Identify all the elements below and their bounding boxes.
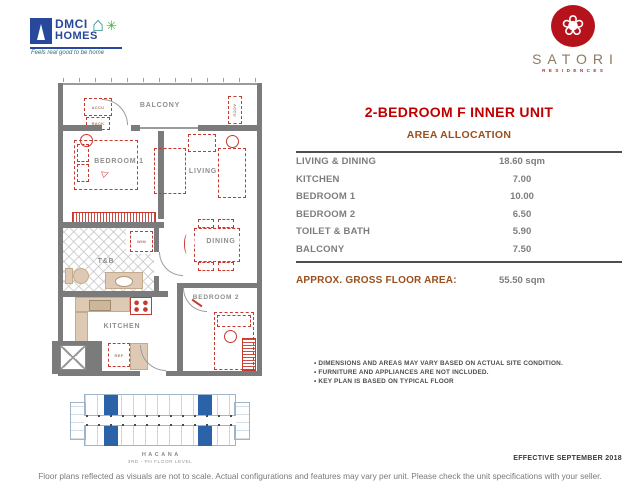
footer-disclaimer: Floor plans reflected as visuals are not… (0, 471, 640, 481)
area-value: 6.50 (467, 209, 577, 220)
room-label-tb: T&B (78, 258, 134, 265)
room-label-living: LIVING (171, 168, 235, 175)
table-row: BEDROOM 2 6.50 (296, 206, 622, 224)
note-item: DIMENSIONS AND AREAS MAY VARY BASED ON A… (314, 360, 624, 369)
effective-date: EFFECTIVE SEPTEMBER 2018 (513, 455, 622, 462)
area-label: BALCONY (296, 244, 467, 255)
dmci-wordmark-line1: DMCI (55, 17, 88, 31)
gross-area-row: APPROX. GROSS FLOOR AREA: 55.50 sqm (296, 267, 622, 293)
dining-chair (198, 219, 214, 228)
pillow (217, 315, 251, 327)
room-label-dining: DINING (189, 238, 253, 245)
sliding-door (140, 127, 198, 129)
unit-floor-plan: ACCU RACK ACCU BALCONY ▷ BEDROOM 1 LIVIN… (58, 76, 262, 380)
room-label-balcony: BALCONY (118, 102, 202, 109)
dmci-underline (30, 47, 122, 49)
ceiling-fan-icon (226, 135, 239, 148)
table-row: LIVING & DINING 18.60 sqm (296, 153, 622, 171)
note-item: FURNITURE AND APPLIANCES ARE NOT INCLUDE… (314, 369, 624, 378)
toilet-tank (65, 268, 73, 284)
door-swing-arc (159, 252, 183, 276)
wall (154, 228, 159, 252)
gross-area-label: APPROX. GROSS FLOOR AREA: (296, 275, 467, 286)
toilet-bowl (73, 268, 89, 284)
balcony-rail-ticks (63, 78, 257, 82)
highlighted-unit (104, 426, 118, 446)
sakura-circle-icon: ❀ (551, 5, 595, 47)
wall (131, 125, 140, 131)
leaf-splash-icon: ✳ (106, 18, 117, 34)
dmci-tagline: Feels real good to be home (31, 50, 104, 56)
refrigerator-box: REF (108, 343, 130, 367)
area-label: KITCHEN (296, 174, 467, 185)
area-value: 7.50 (467, 244, 577, 255)
washing-machine-box: W/M (130, 231, 153, 252)
key-plan (80, 392, 240, 450)
satori-residences-logo: ❀ SATORI RESIDENCES (505, 5, 640, 77)
ceiling-fan-icon (224, 330, 237, 343)
satori-wordmark: SATORI (505, 51, 640, 67)
satori-subtitle: RESIDENCES (505, 68, 640, 73)
area-allocation-panel: 2-BEDROOM F INNER UNIT AREA ALLOCATION L… (296, 104, 622, 293)
highlighted-unit (104, 395, 118, 415)
room-label-kitchen: KITCHEN (90, 323, 154, 330)
keyplan-level: 3RD - PH FLOOR LEVEL (80, 460, 240, 465)
dining-chair (198, 262, 214, 271)
table-row: TOILET & BATH 5.90 (296, 223, 622, 241)
dining-chair (218, 262, 234, 271)
house-icon: ⌂ (92, 14, 104, 37)
keyplan-columns (86, 415, 234, 417)
dmci-homes-logo: DMCI HOMES ⌂ ✳ Feels real good to be hom… (30, 16, 122, 60)
note-item: KEY PLAN IS BASED ON TYPICAL FLOOR (314, 378, 624, 387)
area-label: LIVING & DINING (296, 156, 467, 167)
wall (154, 276, 159, 291)
divider-bottom (296, 261, 622, 263)
wall-right (257, 83, 262, 376)
wall (63, 125, 102, 131)
dmci-monument-icon (30, 18, 52, 44)
floor-plan-flyer: DMCI HOMES ⌂ ✳ Feels real good to be hom… (0, 0, 640, 494)
dining-table (194, 228, 240, 262)
accu-box: ACCU (228, 96, 242, 124)
table-row: BALCONY 7.50 (296, 241, 622, 259)
room-label-bedroom1: BEDROOM 1 (74, 158, 164, 165)
stove (130, 297, 152, 315)
keyplan-building-name: HACANA (80, 452, 240, 458)
area-value: 10.00 (467, 191, 577, 202)
keyplan-right-wing (234, 402, 250, 440)
kitchen-sink (89, 300, 111, 311)
area-value: 7.00 (467, 174, 577, 185)
pillow (77, 164, 89, 182)
balcony-rail (63, 83, 257, 85)
unit-title: 2-BEDROOM F INNER UNIT (296, 104, 622, 120)
sink-bowl (115, 276, 133, 287)
wall (198, 125, 257, 131)
highlighted-unit (198, 395, 212, 415)
table-row: BEDROOM 1 10.00 (296, 188, 622, 206)
gross-area-value: 55.50 sqm (467, 275, 577, 286)
area-value: 5.90 (467, 226, 577, 237)
wall-bottom (63, 371, 140, 376)
sakura-flower-icon: ❀ (561, 12, 584, 40)
disclaimer-notes: DIMENSIONS AND AREAS MAY VARY BASED ON A… (314, 360, 624, 386)
area-label: BEDROOM 1 (296, 191, 467, 202)
area-value: 18.60 sqm (467, 156, 577, 167)
ceiling-fan-icon (80, 134, 93, 147)
dining-chair (218, 219, 234, 228)
area-label: BEDROOM 2 (296, 209, 467, 220)
closet-hatch (242, 338, 256, 371)
tv-console (188, 134, 216, 152)
highlighted-unit (198, 426, 212, 446)
room-label-bedroom2: BEDROOM 2 (178, 295, 254, 302)
shaft-x-box (60, 345, 86, 370)
section-title: AREA ALLOCATION (296, 129, 622, 141)
table-row: KITCHEN 7.00 (296, 171, 622, 189)
area-label: TOILET & BATH (296, 226, 467, 237)
